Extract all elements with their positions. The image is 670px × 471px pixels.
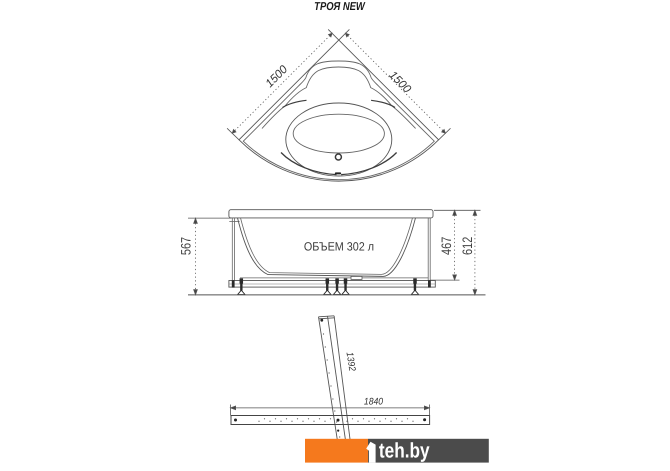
svg-text:ОБЪЕМ 302 л: ОБЪЕМ 302 л — [304, 239, 374, 253]
svg-text:ТРОЯ NEW: ТРОЯ NEW — [314, 1, 366, 13]
svg-text:1840: 1840 — [364, 396, 384, 407]
svg-text:567: 567 — [179, 237, 194, 255]
svg-text:612: 612 — [460, 237, 475, 255]
svg-text:467: 467 — [439, 237, 454, 255]
svg-text:teh.by: teh.by — [379, 440, 430, 463]
